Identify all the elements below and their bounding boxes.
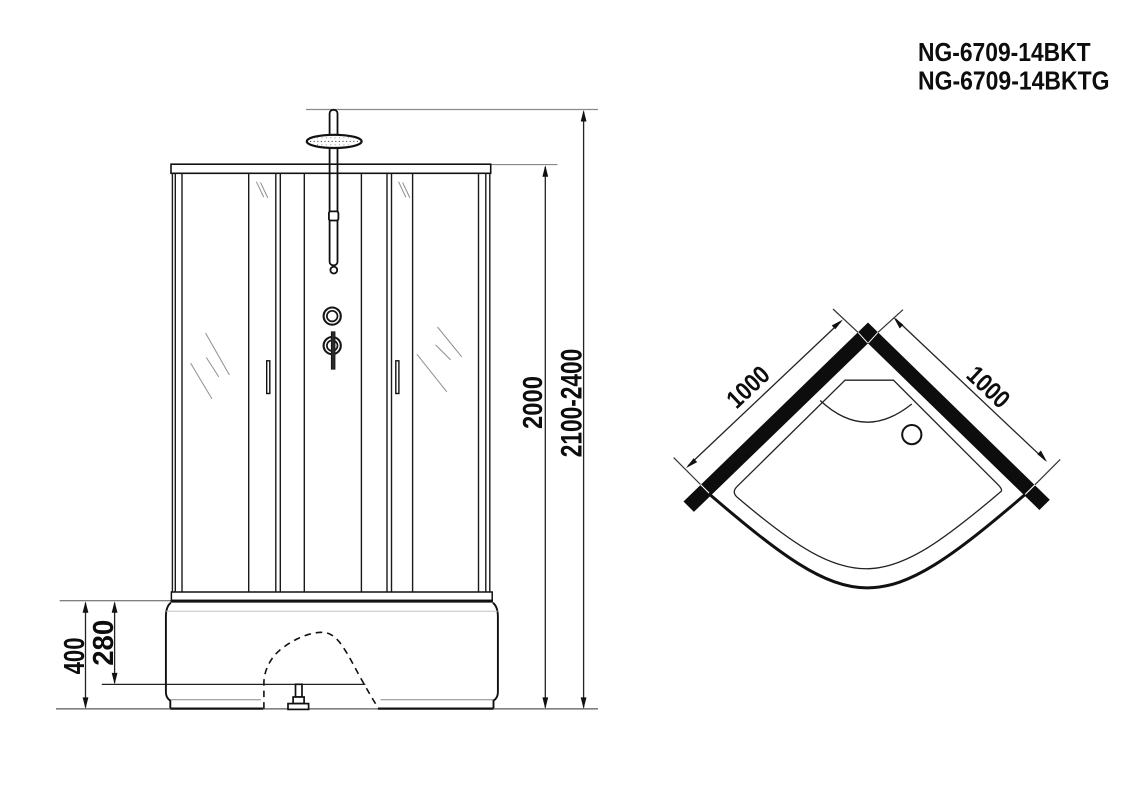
svg-text:NG-6709-14BKT: NG-6709-14BKT [918,39,1091,67]
svg-text:2000: 2000 [517,376,548,429]
svg-text:2100-2400: 2100-2400 [555,349,588,458]
svg-text:NG-6709-14BKTG: NG-6709-14BKTG [918,68,1110,96]
svg-text:400: 400 [59,637,91,674]
svg-text:280: 280 [88,620,120,666]
